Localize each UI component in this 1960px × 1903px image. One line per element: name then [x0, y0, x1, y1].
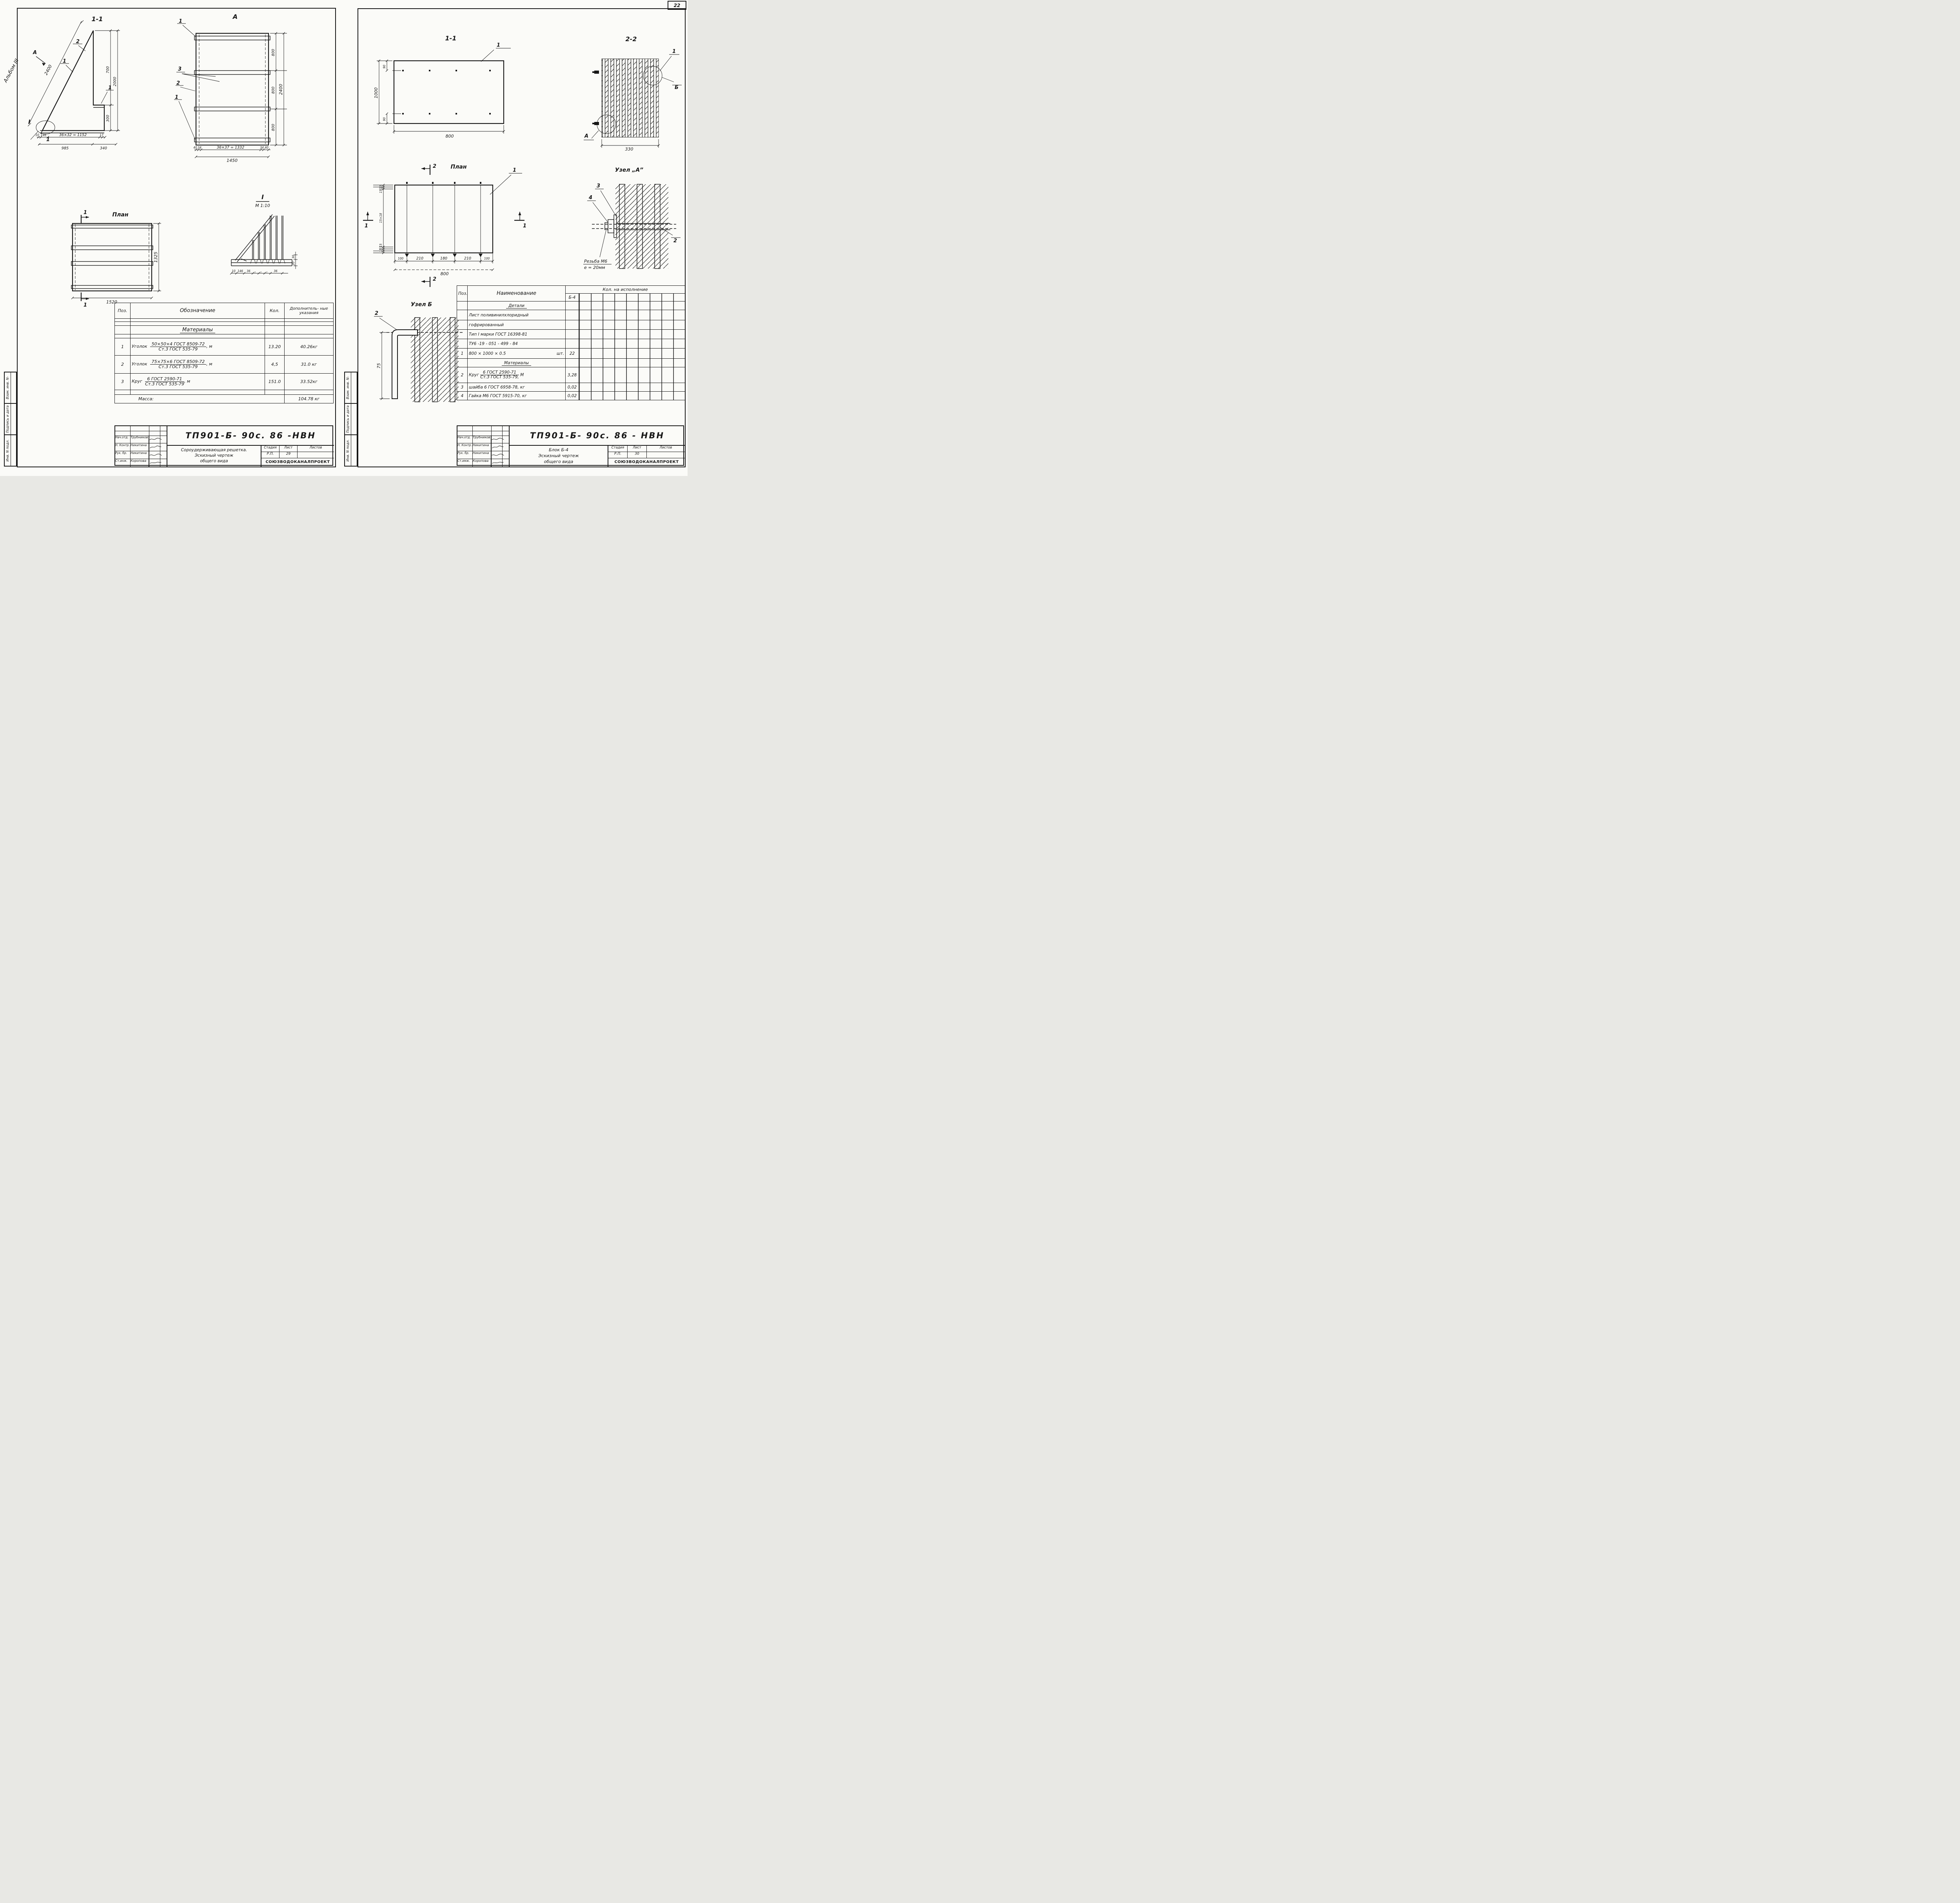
signature: [491, 459, 510, 467]
section-mark: 2: [433, 163, 436, 169]
dim-label: 36×37 = 1332: [217, 145, 244, 150]
signature: [149, 443, 167, 451]
stage-header: Стадия: [261, 446, 279, 452]
dim-label: 100: [398, 257, 404, 260]
dim-label: 15: [379, 248, 383, 252]
callout-label: 2: [673, 238, 677, 244]
dim-label: 34: [260, 146, 264, 149]
role-name: Никитина: [130, 443, 149, 451]
sheets-header: Листов: [647, 446, 685, 452]
sheet2-margin-boxes: Взам. инв. N- Подпись и дата Инв. N подл…: [344, 372, 358, 467]
dim-label: 17: [100, 133, 103, 137]
cell-note: 33.52кг: [285, 374, 334, 390]
drawing-title-line: Сороудерживающая решетка.: [167, 447, 261, 453]
dim-label: 2400: [44, 64, 53, 76]
dim-label: 40: [193, 146, 197, 149]
cell-designation: Уголок 75×75×6 ГОСТ 8509-72Ст.3 ГОСТ 535…: [131, 356, 265, 374]
callout-label: 1: [179, 18, 182, 24]
callout-label: 2: [76, 39, 80, 45]
figure-title: 2-2: [626, 35, 637, 43]
figure-title: Узел „А”: [615, 167, 643, 173]
margin-box-label: Подпись и дата: [6, 405, 10, 433]
figure-title: План: [112, 212, 128, 218]
cell-name: Круг 6 ГОСТ 2590-71Ст.3 ГОСТ 535-79, М: [468, 367, 566, 383]
cell-note: 31.0 кг: [285, 356, 334, 374]
dim-label: „: [266, 269, 268, 273]
figure-plan-left: 1 План 1325 1520 1: [61, 209, 167, 307]
figure-title: 1-1: [92, 15, 103, 23]
cell-pos: 3: [457, 383, 468, 392]
titleblock-sheet1: Нач.отд. Трубников Н. Контр. Никитина Ру…: [114, 425, 333, 466]
dim-label: 34: [198, 146, 201, 149]
drawing-title-line: Блок Б-4: [510, 447, 608, 453]
role-name: Никитина: [130, 451, 149, 459]
cell-designation: Уголок 50×50×4 ГОСТ 8509-72Ст.3 ГОСТ 535…: [131, 338, 265, 356]
cell-text: ТУ6 -19 - 051 - 499 - 84: [468, 339, 566, 349]
col-header: Кол. на исполнение: [566, 286, 685, 294]
spec-table: Поз. Наименование Кол. на исполнение Б-4…: [457, 285, 685, 400]
materials-table: Поз. Обозначение Кол. Дополнитель- ные у…: [114, 303, 334, 403]
figure-uzel-b: Узел Б 75 2: [361, 296, 466, 414]
figure-title: План: [450, 164, 466, 170]
dim-label: 90: [383, 117, 386, 121]
dim-label: „: [254, 269, 256, 273]
margin-box-label: Взам. инв. N-: [6, 376, 10, 399]
dim-label: 800: [271, 124, 276, 131]
signature: [149, 459, 167, 467]
sheet1-margin-boxes: Взам. инв. N- Подпись и дата Инв. N подл…: [4, 372, 17, 467]
callout-label: 4: [588, 195, 592, 201]
sheets-header: Листов: [298, 446, 334, 452]
cell-name: 800 × 1000 × 0.5шт.: [468, 349, 566, 359]
dim-label: 800: [441, 271, 449, 276]
dim-label: 90: [383, 65, 386, 69]
cell-note: 40.26кг: [285, 338, 334, 356]
dim-label: 15: [379, 185, 383, 189]
drawing-title-line: общего вида: [167, 458, 261, 464]
callout-label: 3: [597, 183, 600, 189]
callout-label: 1: [175, 94, 178, 100]
dim-label: 15×18: [379, 213, 383, 223]
signature: [149, 436, 167, 443]
figure-section-2-2: 2-2 1 Б А 330: [578, 33, 684, 151]
col-header: Кол.: [265, 303, 285, 319]
sheet-header: Лист: [279, 446, 298, 452]
cell-pos: 2: [457, 367, 468, 383]
organization-stamp: СОЮЗВОДОКАНАЛПРОЕКТ: [614, 460, 679, 464]
doc-number: ТП901-Б- 90с. 86 -НВН: [185, 431, 316, 440]
drawing-title-line: Эскизный чертеж: [167, 453, 261, 458]
dim-label: 1450: [227, 158, 238, 163]
figure-title: I: [261, 193, 264, 201]
callout-label: 1: [513, 167, 516, 173]
section-mark: 1: [523, 223, 526, 229]
cell-qty: 151.0: [265, 374, 285, 390]
dim-label: 30: [292, 255, 295, 259]
section-mark: 1: [365, 223, 368, 229]
role-name: Коропова: [472, 459, 491, 467]
stage-value: Р.П.: [608, 452, 628, 458]
callout-label: Б: [675, 85, 679, 91]
role: Н. Контр.: [457, 443, 472, 451]
stage-header: Стадия: [608, 446, 628, 452]
dim-label: 210: [464, 256, 471, 261]
callout-label: 1: [63, 58, 66, 64]
role: Ст.имж.: [457, 459, 472, 467]
dim-label: 800: [271, 49, 276, 56]
role-name: Трубников: [130, 436, 149, 443]
cell-designation: Круг 6 ГОСТ 2590-71Ст.3 ГОСТ 535-79, м: [131, 374, 265, 390]
stage-value: Р.П.: [261, 452, 279, 458]
margin-box-label: Инв. N подл.: [6, 439, 10, 461]
signature: [491, 443, 510, 451]
section-header: Материалы: [502, 361, 531, 366]
cell-pos: 3: [115, 374, 131, 390]
doc-number: ТП901-Б- 90с. 86 - НВН: [530, 431, 664, 440]
cell-pos: 2: [115, 356, 131, 374]
dim-label: 36: [274, 269, 278, 273]
signature: [491, 451, 510, 459]
dim-label: 15: [379, 243, 383, 247]
drawing-title-line: общего вида: [510, 459, 608, 465]
callout-label: 1: [108, 85, 112, 91]
col-header: Дополнитель- ные указания: [285, 303, 334, 319]
dim-label: 300: [106, 115, 110, 122]
figure-title: А: [232, 13, 238, 20]
sheets-value: [647, 452, 685, 458]
dim-label: 15: [379, 189, 383, 193]
dim-label: 20: [292, 261, 295, 265]
cell-text: гофрированный: [468, 320, 566, 330]
footer-value-cell: 104.78 кг: [285, 395, 334, 403]
margin-box-label: Инв. N подл.: [346, 439, 350, 461]
callout-label: А: [584, 133, 588, 139]
role: Рук. бр.: [115, 451, 130, 459]
figure-title: Узел Б: [411, 301, 432, 308]
dim-label: 10: [232, 269, 236, 273]
dim-label: 180: [440, 256, 447, 261]
cell-pos: 1: [457, 349, 468, 359]
section-mark: 2: [433, 276, 436, 282]
dim-label: 36: [247, 269, 250, 273]
cell-pos: 1: [115, 338, 131, 356]
note-text: Резьба М6: [584, 259, 607, 264]
role: Н. Контр.: [115, 443, 130, 451]
role-name: Никитина: [472, 443, 491, 451]
figure-section-1-1: 1-1 2400 700 300 2000 10 146 36×32 = 115…: [23, 15, 127, 150]
role: Ст.инж.: [115, 459, 130, 467]
figure-title: 1-1: [445, 35, 457, 42]
dim-label: 40: [265, 146, 269, 149]
dim-label: 100: [484, 257, 490, 260]
cell-qty: 13.20: [265, 338, 285, 356]
callout-label: 3: [178, 66, 181, 72]
cell-name: шайба 6 ГОСТ 6958-78, кг: [468, 383, 566, 392]
dim-label: „: [260, 269, 262, 273]
cell-qty: 0,02: [566, 383, 579, 392]
figure-scale: М 1:10: [255, 203, 270, 208]
margin-box-label: Подпись и дата: [346, 405, 350, 433]
col-subheader: Б-4: [566, 294, 579, 301]
figure-view-a: А 1 3 2 1 800 800 800 2400 40 34 36×37 =…: [172, 12, 306, 163]
figure-plan-right: 2 План 1 15 15 15×18 15 15 1 1 100 210 1…: [358, 157, 530, 288]
cell-qty: 0,02: [566, 392, 579, 400]
cell-text: Лист поливинилхлоридный: [468, 310, 566, 320]
section-mark: 1: [83, 210, 87, 216]
figure-uzel-a: Узел „А” 3 4 2 Резьба М6 е = 20мм: [568, 165, 684, 278]
callout-label: 2: [375, 311, 378, 316]
signature: [491, 436, 510, 443]
role-name: Трубников: [472, 436, 491, 443]
view-arrow-label: А: [33, 50, 37, 56]
cell-text: Тип I марки ГОСТ 16398-81: [468, 330, 566, 339]
dim-label: 340: [100, 146, 107, 151]
figure-detail-i: I М 1:10 30 20 10 146 36 „ „ „ 36: [225, 193, 298, 281]
page-number-box: 22: [668, 1, 686, 10]
dim-label: 36×32 = 1152: [59, 133, 87, 137]
role: Нач.отд.: [457, 436, 472, 443]
callout-label: 2: [176, 80, 180, 86]
role-name: Никитина: [472, 451, 491, 459]
drawing-page: 22 Альбом III Взам. инв. N- Подпись и да…: [0, 0, 688, 476]
cell-qty: 4,5: [265, 356, 285, 374]
sheet-header: Лист: [628, 446, 647, 452]
footer-label-cell: Масса:: [115, 395, 285, 403]
sheet-value: 29: [279, 452, 298, 458]
callout-label: 1: [497, 42, 500, 48]
dim-label: 700: [106, 66, 110, 73]
drawing-title-line: Эскизный чертеж: [510, 453, 608, 459]
section-mark: 1: [83, 302, 87, 308]
organization-stamp: СОЮЗВОДОКАНАЛПРОЕКТ: [265, 460, 330, 464]
section-header: Детали: [506, 303, 527, 309]
margin-box-label: Взам. инв. N-: [346, 376, 350, 399]
dim-label: 2400: [278, 84, 283, 95]
signature: [149, 451, 167, 459]
section-header: Материалы: [180, 327, 215, 333]
col-header: Обозначение: [131, 303, 265, 319]
dim-label: 985: [62, 146, 69, 151]
dim-label: 2000: [113, 77, 117, 86]
dim-label: 800: [271, 87, 276, 94]
callout-label: 1: [672, 49, 676, 54]
col-header: Поз.: [115, 303, 131, 319]
detail-mark: I: [28, 118, 31, 125]
cell-qty: 22: [566, 349, 579, 359]
cell-pos: 4: [457, 392, 468, 400]
dim-label: 1325: [153, 252, 158, 263]
note-text: е = 20мм: [584, 265, 605, 270]
dim-label: 146: [41, 133, 47, 137]
callout-label: 1: [46, 137, 50, 143]
col-header: Наименование: [468, 286, 566, 301]
dim-label: 330: [625, 147, 633, 152]
role: Рук. бр.: [457, 451, 472, 459]
titleblock-sheet2: Нач.отд. Трубников Н. Контр. Никитина Ру…: [457, 425, 684, 466]
dim-label: 75: [376, 363, 381, 369]
col-header: Поз.: [457, 286, 468, 301]
dim-label: 800: [446, 134, 454, 139]
sheet-value: 30: [628, 452, 647, 458]
role: Нач.отд.: [115, 436, 130, 443]
figure-section-1-1-right: 1-1 1 1000 90 90 800: [367, 33, 527, 139]
dim-label: 210: [416, 256, 423, 261]
role-name: Коропова: [130, 459, 149, 467]
dim-label: 146: [238, 269, 243, 273]
cell-name: Гайка М6 ГОСТ 5915-70, кг: [468, 392, 566, 400]
sheets-value: [298, 452, 334, 458]
page-number: 22: [674, 3, 681, 8]
cell-qty: 3,28: [566, 367, 579, 383]
dim-label: 1000: [374, 87, 379, 98]
